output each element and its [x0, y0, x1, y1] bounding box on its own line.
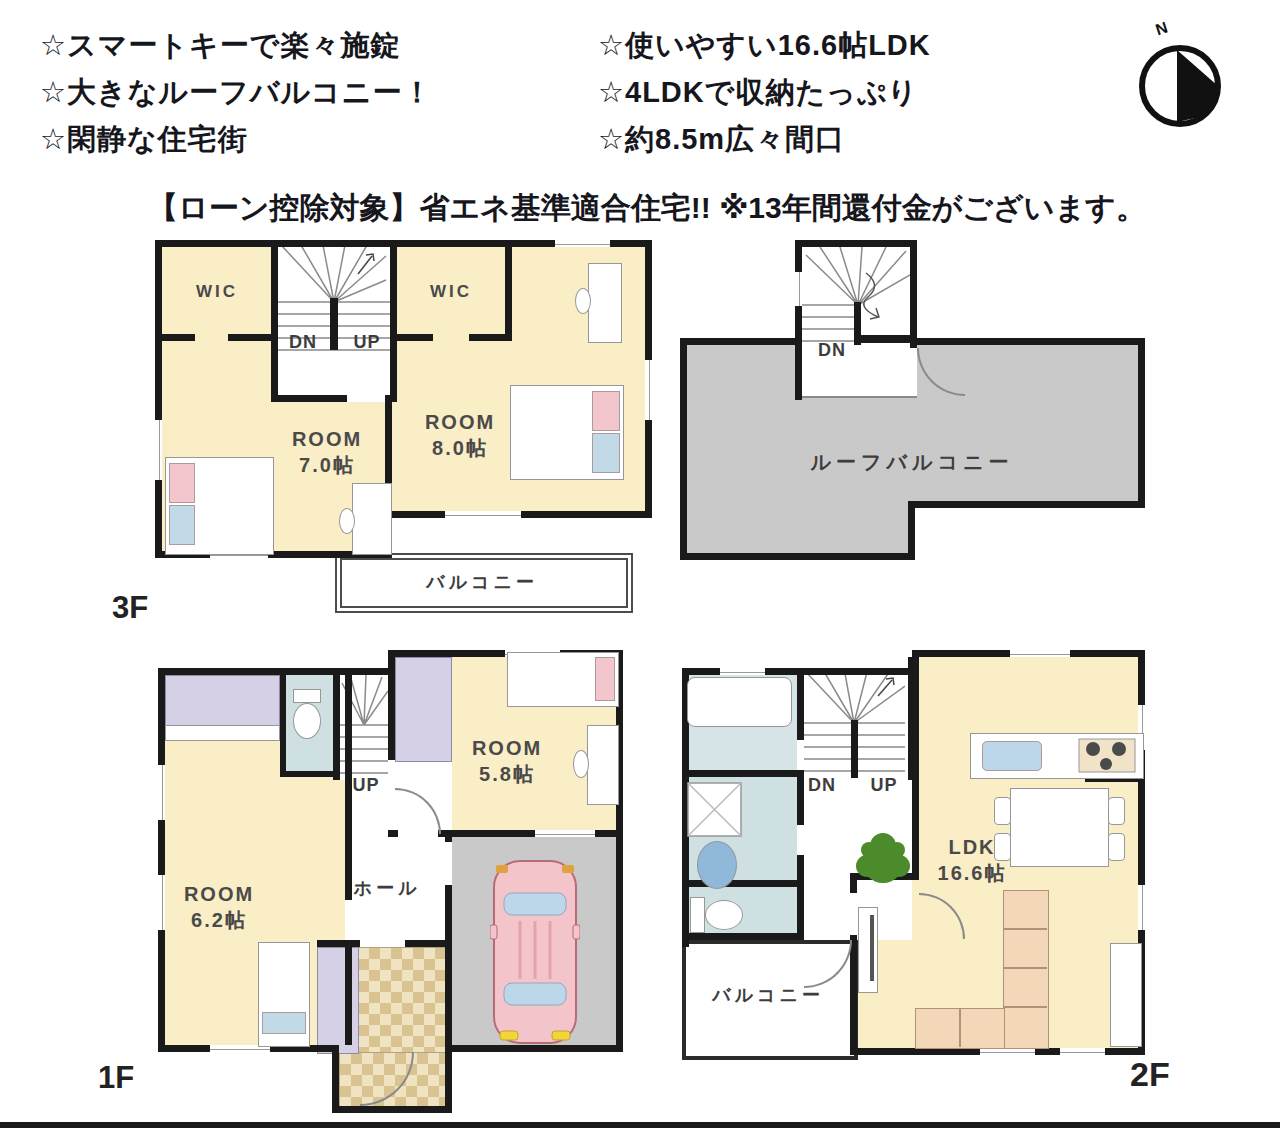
- step-line: [802, 396, 917, 398]
- wall: [158, 668, 165, 1052]
- sofa-seam: [959, 1008, 961, 1047]
- dining-table: [1010, 788, 1109, 867]
- kitchen-sink: [982, 741, 1042, 771]
- window: [645, 360, 652, 420]
- car-icon: [490, 855, 580, 1050]
- wall: [797, 855, 804, 940]
- room-size: 6.2帖: [184, 907, 254, 933]
- floor-plan-flyer: ☆スマートキーで楽々施錠 ☆大きなルーフバルコニー！ ☆閑静な住宅街 ☆使いやす…: [0, 0, 1280, 1133]
- wall: [397, 334, 433, 341]
- toilet-tank: [690, 897, 705, 933]
- feature-bullets-left: ☆スマートキーで楽々施錠 ☆大きなルーフバルコニー！ ☆閑静な住宅街: [40, 22, 432, 163]
- wall: [445, 1045, 452, 1113]
- window: [1060, 1048, 1105, 1055]
- desk: [588, 263, 622, 343]
- window: [158, 875, 165, 930]
- pillow: [262, 1012, 306, 1034]
- plan-1f: ROOM 6.2帖 ROOM 5.8帖 ホール UP: [155, 645, 655, 1120]
- bottom-divider: [0, 1122, 1280, 1128]
- room-label: ROOM 7.0帖: [292, 426, 362, 478]
- wall: [452, 1045, 623, 1052]
- window: [555, 240, 610, 247]
- wall: [908, 501, 915, 560]
- wall: [332, 1106, 452, 1113]
- wall: [682, 880, 797, 887]
- hall-label: ホール: [354, 876, 421, 900]
- pillow: [595, 657, 615, 701]
- pillow: [169, 505, 195, 545]
- wall: [795, 348, 802, 400]
- toilet-icon: [293, 703, 321, 739]
- door-opening: [445, 842, 452, 885]
- window: [1010, 650, 1070, 657]
- toilet-tank: [293, 689, 321, 703]
- sink-icon: [697, 841, 737, 889]
- wall: [917, 338, 1145, 345]
- wall: [680, 338, 687, 560]
- wic-label: WIC: [430, 282, 472, 302]
- wic-label: WIC: [196, 282, 238, 302]
- shoe-cabinet: [317, 947, 359, 1054]
- closet: [395, 657, 452, 762]
- plant-icon: [855, 832, 911, 888]
- sofa-seam: [1003, 967, 1047, 969]
- room-name: ROOM: [184, 881, 254, 907]
- wall: [280, 771, 333, 777]
- cupboard: [1110, 943, 1142, 1047]
- wall: [155, 240, 162, 558]
- wall: [469, 334, 505, 341]
- balcony-label: バルコニー: [712, 983, 824, 1007]
- pillow: [592, 391, 620, 431]
- wall: [271, 240, 278, 402]
- window: [155, 420, 162, 480]
- wall: [228, 334, 271, 341]
- room-label: ROOM 5.8帖: [472, 735, 542, 787]
- door-opening: [850, 893, 857, 935]
- sofa-seam: [1003, 1006, 1047, 1008]
- chair: [339, 508, 355, 534]
- headline: 【ローン控除対象】省エネ基準適合住宅!! ※13年間還付金がございます。: [148, 188, 1146, 229]
- wall: [908, 657, 919, 780]
- bullet-quiet-area: ☆閑静な住宅街: [40, 116, 432, 163]
- stove-icon: [1078, 738, 1136, 773]
- chair: [573, 750, 589, 778]
- ldk-label: LDK 16.6帖: [938, 834, 1007, 886]
- cabinet: [352, 483, 392, 555]
- window: [795, 272, 802, 306]
- wall: [910, 240, 917, 348]
- window: [1138, 885, 1145, 930]
- room-name: ROOM: [425, 409, 495, 435]
- plan-roof: DN ルーフバルコニー: [680, 240, 1150, 565]
- tv-icon: [870, 915, 874, 981]
- tv-board: [858, 907, 878, 993]
- wall: [345, 675, 352, 900]
- wall: [616, 650, 623, 1052]
- room-label: ROOM 6.2帖: [184, 881, 254, 933]
- floor-label-2f: 2F: [1130, 1055, 1170, 1094]
- stair-up-label: UP: [352, 775, 379, 796]
- window: [535, 830, 595, 837]
- roof-balcony-label: ルーフバルコニー: [811, 449, 1014, 476]
- room-size: 8.0帖: [425, 435, 495, 461]
- wall: [680, 553, 915, 560]
- toilet-icon: [705, 900, 743, 930]
- bathtub: [687, 677, 792, 727]
- wall: [388, 675, 395, 760]
- room-name: LDK: [938, 834, 1007, 860]
- room-size: 5.8帖: [472, 761, 542, 787]
- stairs-icon: [802, 247, 910, 345]
- wall: [390, 240, 397, 402]
- room-size: 7.0帖: [292, 452, 362, 478]
- window: [720, 668, 765, 675]
- wall: [795, 240, 917, 247]
- wall: [280, 675, 286, 777]
- chair: [1108, 833, 1125, 861]
- plan-2f: DN UP LDK 16.6帖 バルコニー: [680, 645, 1155, 1065]
- room-size: 16.6帖: [938, 860, 1007, 886]
- bullet-frontage: ☆約8.5m広々間口: [598, 116, 931, 163]
- door-opening: [347, 395, 385, 402]
- wall: [797, 668, 804, 740]
- chair: [575, 288, 591, 314]
- wall: [682, 770, 797, 777]
- wall: [333, 675, 340, 780]
- desk: [587, 725, 619, 805]
- stair-up-label: UP: [870, 775, 897, 796]
- room-name: ROOM: [472, 735, 542, 761]
- stair-dn-label: DN: [808, 775, 836, 796]
- plan-3f: WIC WIC DN UP ROOM 7.0帖 ROOM 8.0帖 バルコニー: [155, 240, 655, 612]
- entrance-tile: [357, 947, 447, 1054]
- sofa: [1003, 890, 1049, 1049]
- wall: [682, 933, 797, 940]
- wall: [505, 247, 512, 341]
- sofa-seam: [1003, 928, 1047, 930]
- wall: [158, 668, 395, 675]
- pillow: [169, 463, 195, 503]
- stairs-icon: [278, 240, 390, 395]
- wall: [332, 1045, 339, 1113]
- stair-dn-label: DN: [289, 332, 317, 353]
- wall: [388, 650, 395, 675]
- closet-hanger: [165, 725, 280, 741]
- room-label: ROOM 8.0帖: [425, 409, 495, 461]
- pillow: [592, 433, 620, 473]
- stairs-icon: [804, 668, 905, 780]
- floor-label-3f: 3F: [112, 590, 148, 626]
- compass: N: [1130, 14, 1230, 134]
- wall: [912, 780, 919, 880]
- bullet-roof-balcony: ☆大きなルーフバルコニー！: [40, 69, 432, 116]
- shower-stall-icon: [687, 782, 742, 837]
- wall: [797, 770, 804, 825]
- wall: [680, 338, 795, 345]
- bullet-smart-key: ☆スマートキーで楽々施錠: [40, 22, 432, 69]
- compass-icon: [1130, 14, 1230, 134]
- chair: [994, 797, 1011, 825]
- stair-up-label: UP: [353, 332, 380, 353]
- stair-dn-label: DN: [818, 340, 846, 361]
- room-name: ROOM: [292, 426, 362, 452]
- wall: [162, 334, 195, 341]
- floor-label-1f: 1F: [98, 1060, 134, 1096]
- wall: [908, 501, 1145, 508]
- door-opening: [360, 940, 405, 947]
- chair: [1108, 797, 1125, 825]
- bullet-ldk-size: ☆使いやすい16.6帖LDK: [598, 22, 931, 69]
- feature-bullets-right: ☆使いやすい16.6帖LDK ☆4LDKで収納たっぷり ☆約8.5m広々間口: [598, 22, 931, 163]
- balcony-label: バルコニー: [426, 570, 538, 594]
- closet: [165, 675, 280, 727]
- window: [980, 1048, 1035, 1055]
- bullet-4ldk-storage: ☆4LDKで収納たっぷり: [598, 69, 931, 116]
- wall: [345, 940, 352, 1045]
- window: [158, 765, 165, 820]
- window: [445, 511, 521, 518]
- wall: [1138, 338, 1145, 508]
